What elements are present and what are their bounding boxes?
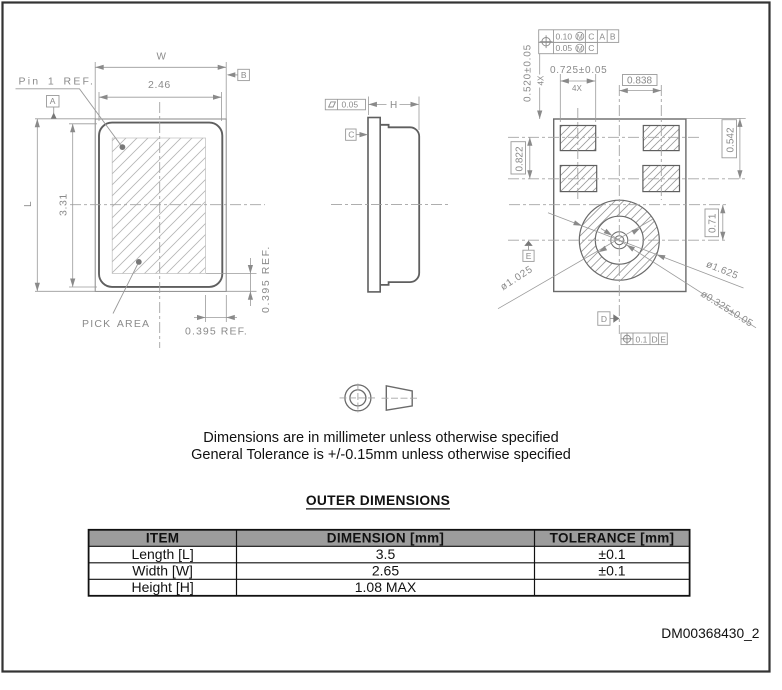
svg-text:3.31: 3.31 bbox=[58, 193, 70, 216]
svg-text:4X: 4X bbox=[537, 75, 546, 85]
svg-text:0.395 REF.: 0.395 REF. bbox=[260, 245, 272, 313]
svg-text:C: C bbox=[588, 31, 594, 41]
svg-text:C: C bbox=[348, 130, 354, 140]
svg-text:H: H bbox=[390, 100, 397, 111]
svg-text:A: A bbox=[50, 96, 56, 106]
svg-text:C: C bbox=[588, 43, 594, 53]
svg-text:Dimensions are in millimeter u: Dimensions are in millimeter unless othe… bbox=[203, 430, 558, 446]
svg-text:0.1: 0.1 bbox=[636, 334, 648, 344]
svg-text:0.05: 0.05 bbox=[342, 100, 359, 110]
svg-text:2.65: 2.65 bbox=[372, 563, 399, 579]
svg-text:Pin 1 REF.: Pin 1 REF. bbox=[19, 76, 96, 88]
svg-text:0.838: 0.838 bbox=[627, 76, 652, 87]
svg-text:PICK AREA: PICK AREA bbox=[82, 318, 150, 330]
svg-text:Height [H]: Height [H] bbox=[131, 579, 193, 595]
svg-text:1.08 MAX: 1.08 MAX bbox=[355, 579, 417, 595]
svg-text:L: L bbox=[23, 201, 34, 207]
svg-text:0.71: 0.71 bbox=[708, 213, 719, 233]
svg-text:±0.1: ±0.1 bbox=[598, 546, 625, 562]
svg-text:ITEM: ITEM bbox=[146, 531, 179, 546]
svg-text:0.10: 0.10 bbox=[556, 31, 573, 41]
svg-text:A: A bbox=[599, 31, 605, 41]
svg-text:±0.1: ±0.1 bbox=[598, 563, 625, 579]
svg-text:TOLERANCE [mm]: TOLERANCE [mm] bbox=[550, 531, 675, 546]
svg-text:0.520±0.05: 0.520±0.05 bbox=[523, 44, 534, 102]
svg-text:OUTER DIMENSIONS: OUTER DIMENSIONS bbox=[306, 493, 450, 508]
svg-text:Length [L]: Length [L] bbox=[131, 546, 193, 562]
svg-text:E: E bbox=[660, 334, 666, 344]
svg-text:3.5: 3.5 bbox=[376, 546, 396, 562]
svg-text:M: M bbox=[577, 34, 583, 41]
svg-text:D: D bbox=[652, 334, 658, 344]
svg-text:B: B bbox=[241, 70, 247, 80]
svg-text:D: D bbox=[601, 314, 607, 324]
svg-text:0.822: 0.822 bbox=[514, 146, 525, 171]
svg-text:0.05: 0.05 bbox=[556, 43, 573, 53]
svg-text:General Tolerance is +/-0.15mm: General Tolerance is +/-0.15mm unless ot… bbox=[191, 447, 571, 463]
svg-text:2.46: 2.46 bbox=[148, 79, 171, 91]
svg-text:0.542: 0.542 bbox=[725, 127, 736, 152]
svg-text:DIMENSION [mm]: DIMENSION [mm] bbox=[327, 531, 444, 546]
svg-text:DM00368430_2: DM00368430_2 bbox=[661, 626, 759, 641]
svg-text:4X: 4X bbox=[572, 84, 582, 93]
svg-text:0.395 REF.: 0.395 REF. bbox=[185, 326, 248, 338]
svg-text:E: E bbox=[526, 251, 532, 261]
svg-text:M: M bbox=[577, 46, 583, 53]
svg-text:Width [W]: Width [W] bbox=[132, 563, 193, 579]
svg-text:B: B bbox=[610, 31, 616, 41]
svg-text:W: W bbox=[157, 52, 167, 63]
svg-text:0.725±0.05: 0.725±0.05 bbox=[550, 65, 607, 76]
